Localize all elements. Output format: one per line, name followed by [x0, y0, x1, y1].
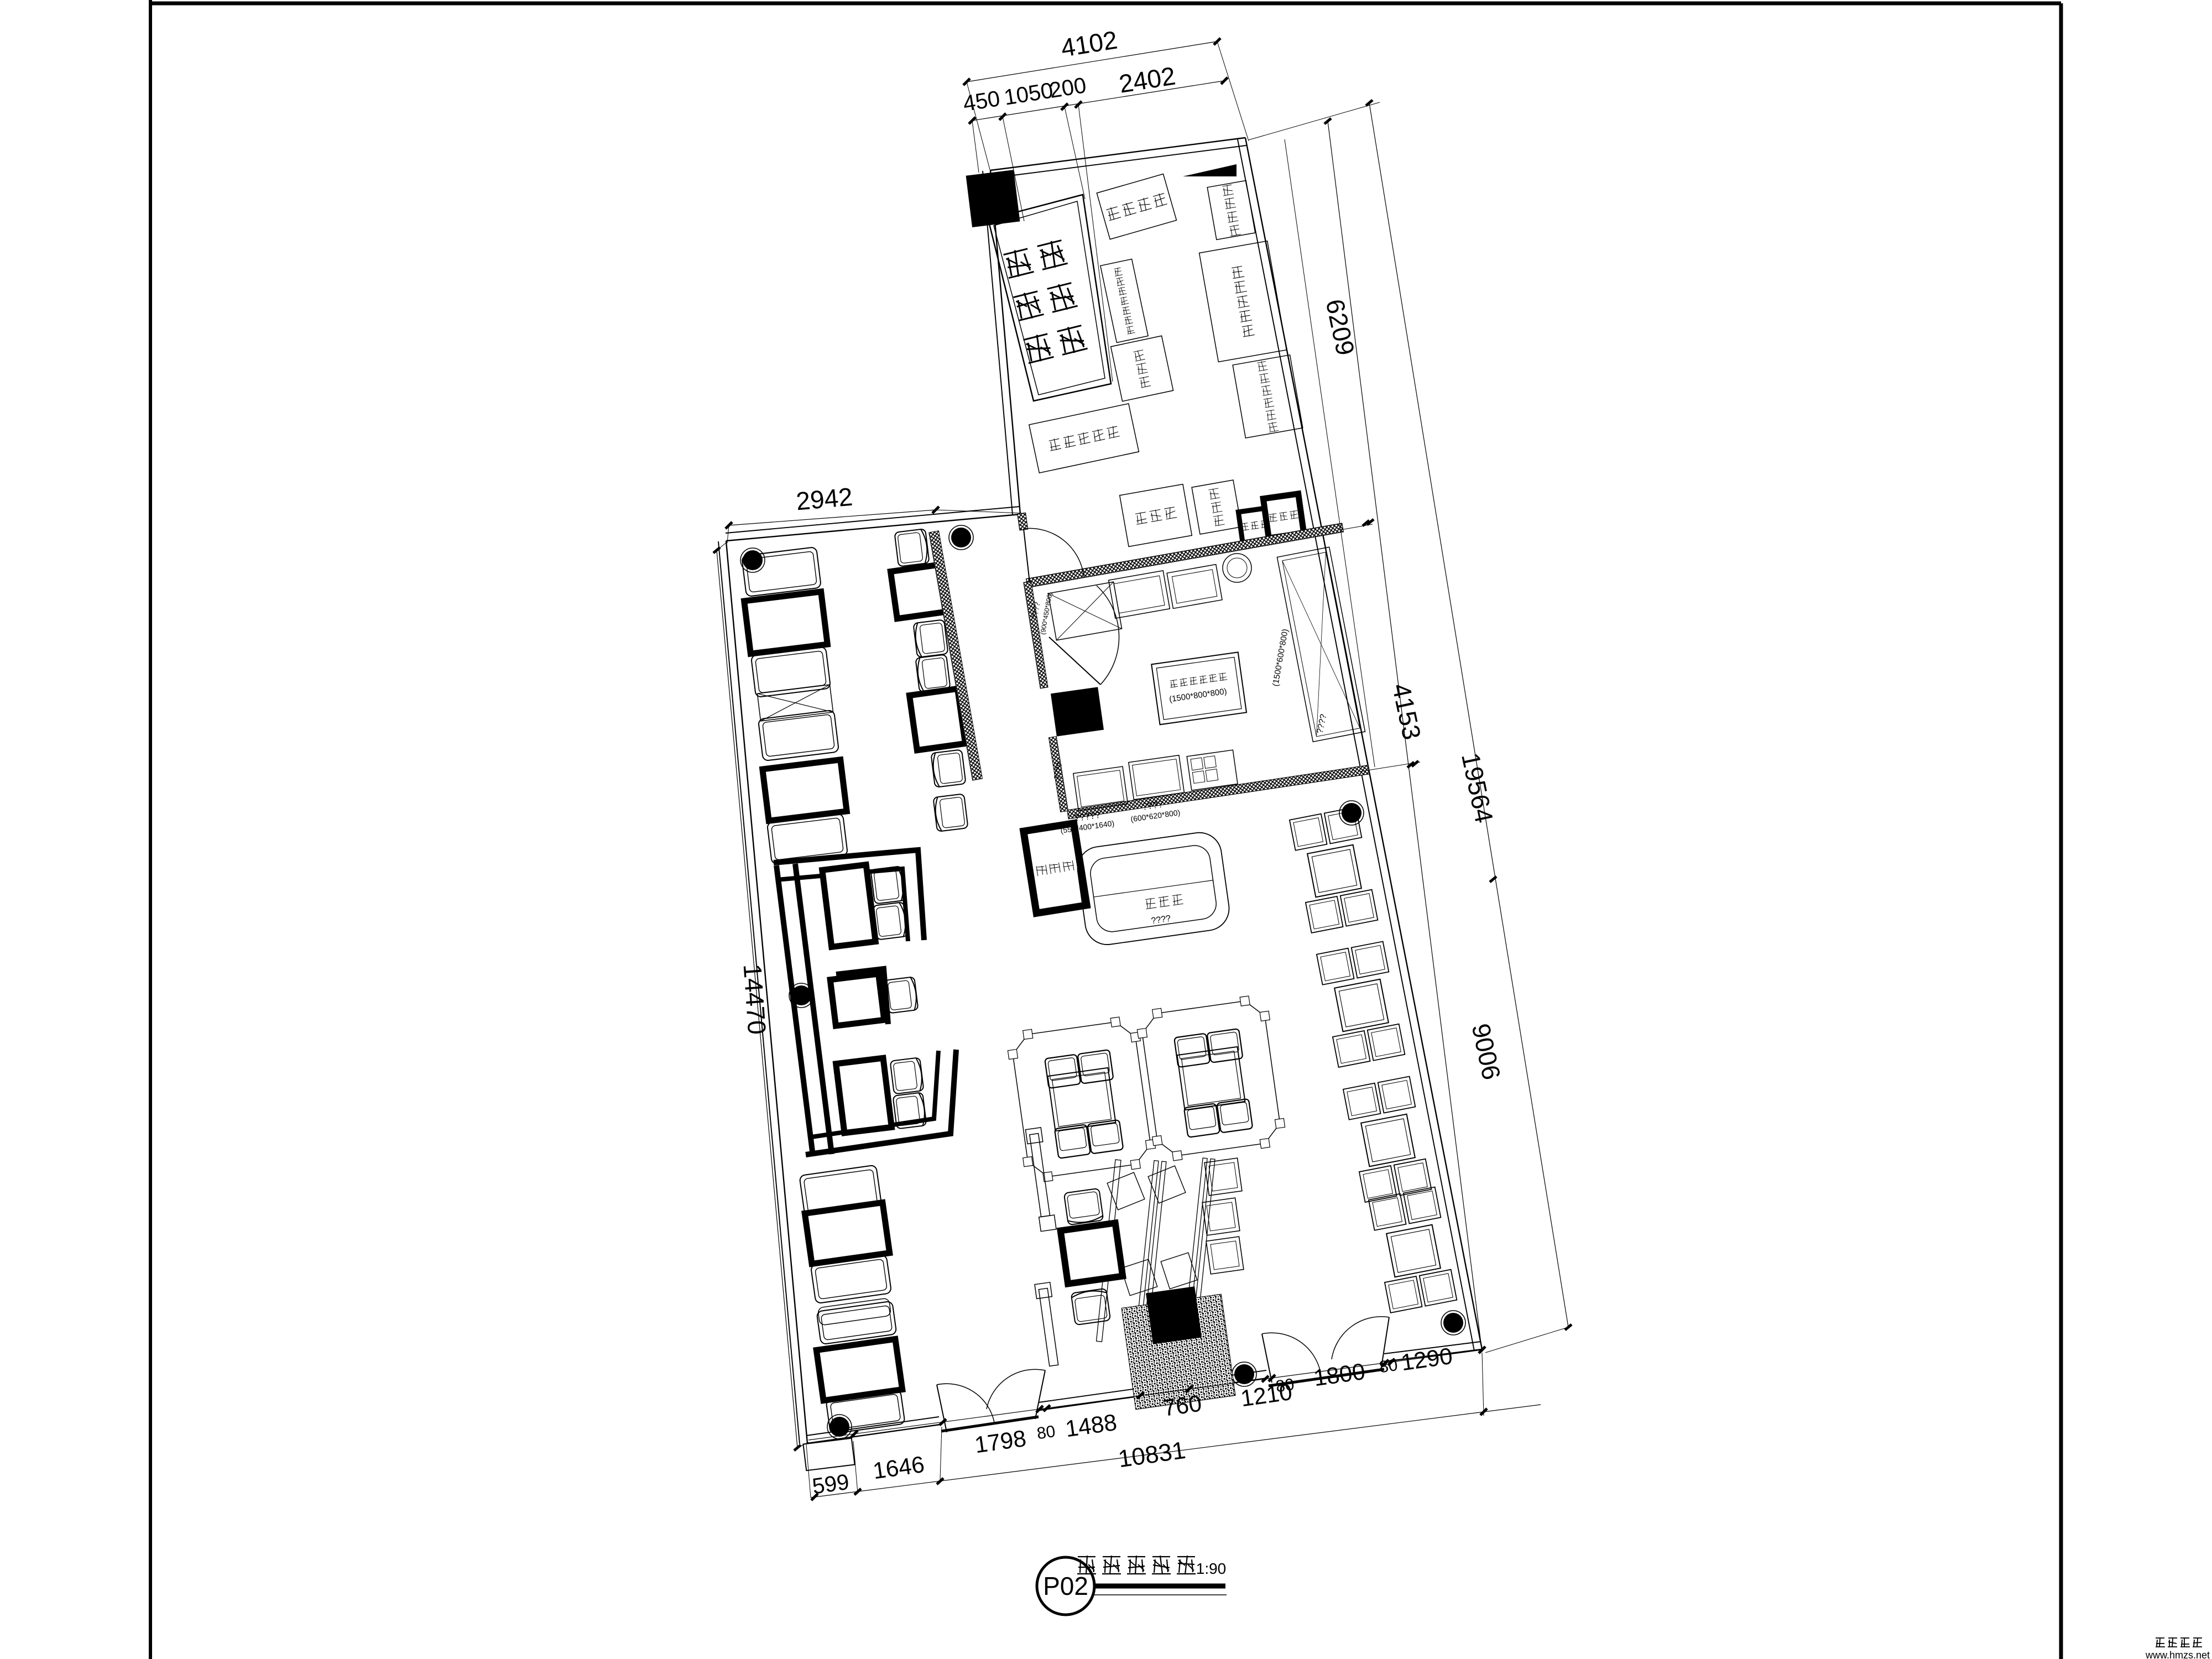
- svg-text:www.hmzs.net: www.hmzs.net: [2145, 1650, 2210, 1659]
- svg-text:80: 80: [1036, 1422, 1057, 1443]
- svg-text:1:90: 1:90: [1196, 1560, 1227, 1577]
- svg-text:760: 760: [1161, 1390, 1203, 1421]
- svg-text:14470: 14470: [738, 963, 772, 1035]
- svg-text:P02: P02: [1043, 1572, 1088, 1600]
- svg-text:80: 80: [1275, 1375, 1296, 1396]
- svg-text:599: 599: [811, 1470, 851, 1499]
- svg-text:80: 80: [1378, 1356, 1399, 1376]
- svg-text:2942: 2942: [795, 482, 853, 516]
